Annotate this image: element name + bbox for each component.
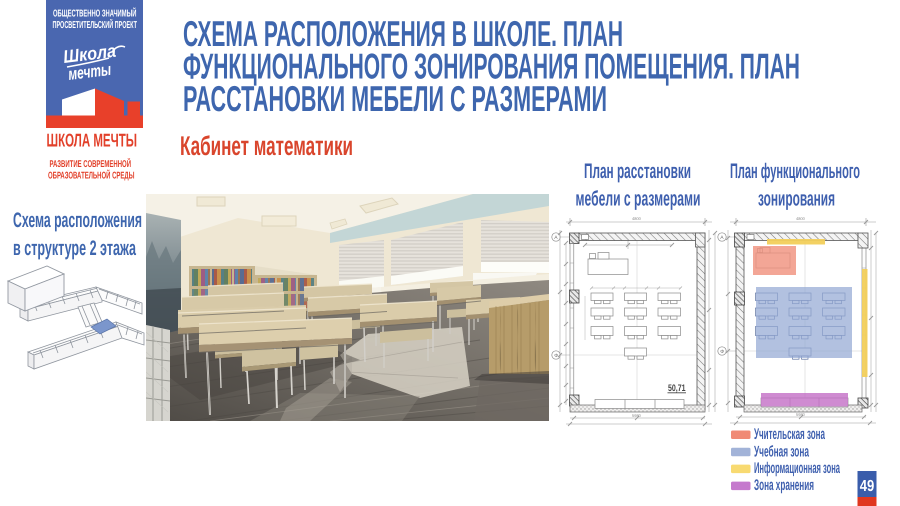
svg-text:5980: 5980	[632, 413, 642, 418]
svg-text:РАССТАНОВКИ МЕБЕЛИ С РАЗМЕРАМИ: РАССТАНОВКИ МЕБЕЛИ С РАЗМЕРАМИ	[183, 78, 607, 119]
svg-text:мебели с размерами: мебели с размерами	[576, 188, 701, 211]
svg-text:Информационная зона: Информационная зона	[754, 460, 840, 477]
svg-text:Ф: Ф	[554, 353, 558, 359]
svg-text:Зона хранения: Зона хранения	[754, 477, 814, 494]
svg-text:ШКОЛА МЕЧТЫ: ШКОЛА МЕЧТЫ	[47, 130, 138, 151]
svg-text:Учительская зона: Учительская зона	[754, 426, 825, 443]
svg-text:4800: 4800	[796, 216, 806, 221]
svg-text:зонирования: зонирования	[758, 188, 835, 211]
svg-text:Кабинет математики: Кабинет математики	[180, 131, 353, 161]
svg-text:в структуре 2 этажа: в структуре 2 этажа	[13, 237, 136, 260]
svg-text:5980: 5980	[796, 412, 806, 417]
svg-text:План функционального: План функционального	[730, 160, 860, 183]
svg-text:План расстановки: План расстановки	[584, 160, 691, 183]
svg-text:Схема расположения: Схема расположения	[13, 209, 142, 232]
svg-text:ОБЩЕСТВЕННО ЗНАЧИМЫЙ: ОБЩЕСТВЕННО ЗНАЧИМЫЙ	[53, 7, 137, 20]
svg-text:РАЗВИТИЕ СОВРЕМЕННОЙ: РАЗВИТИЕ СОВРЕМЕННОЙ	[50, 158, 132, 170]
svg-text:Учебная зона: Учебная зона	[754, 443, 809, 460]
svg-text:ОБРАЗОВАТЕЛЬНОЙ СРЕДЫ: ОБРАЗОВАТЕЛЬНОЙ СРЕДЫ	[48, 170, 135, 182]
svg-text:Ф: Ф	[720, 349, 724, 355]
svg-text:49: 49	[860, 478, 875, 495]
svg-text:4800: 4800	[632, 216, 642, 221]
svg-text:ПРОСВЕТИТЕЛЬСКИЙ ПРОЕКТ: ПРОСВЕТИТЕЛЬСКИЙ ПРОЕКТ	[53, 18, 138, 31]
